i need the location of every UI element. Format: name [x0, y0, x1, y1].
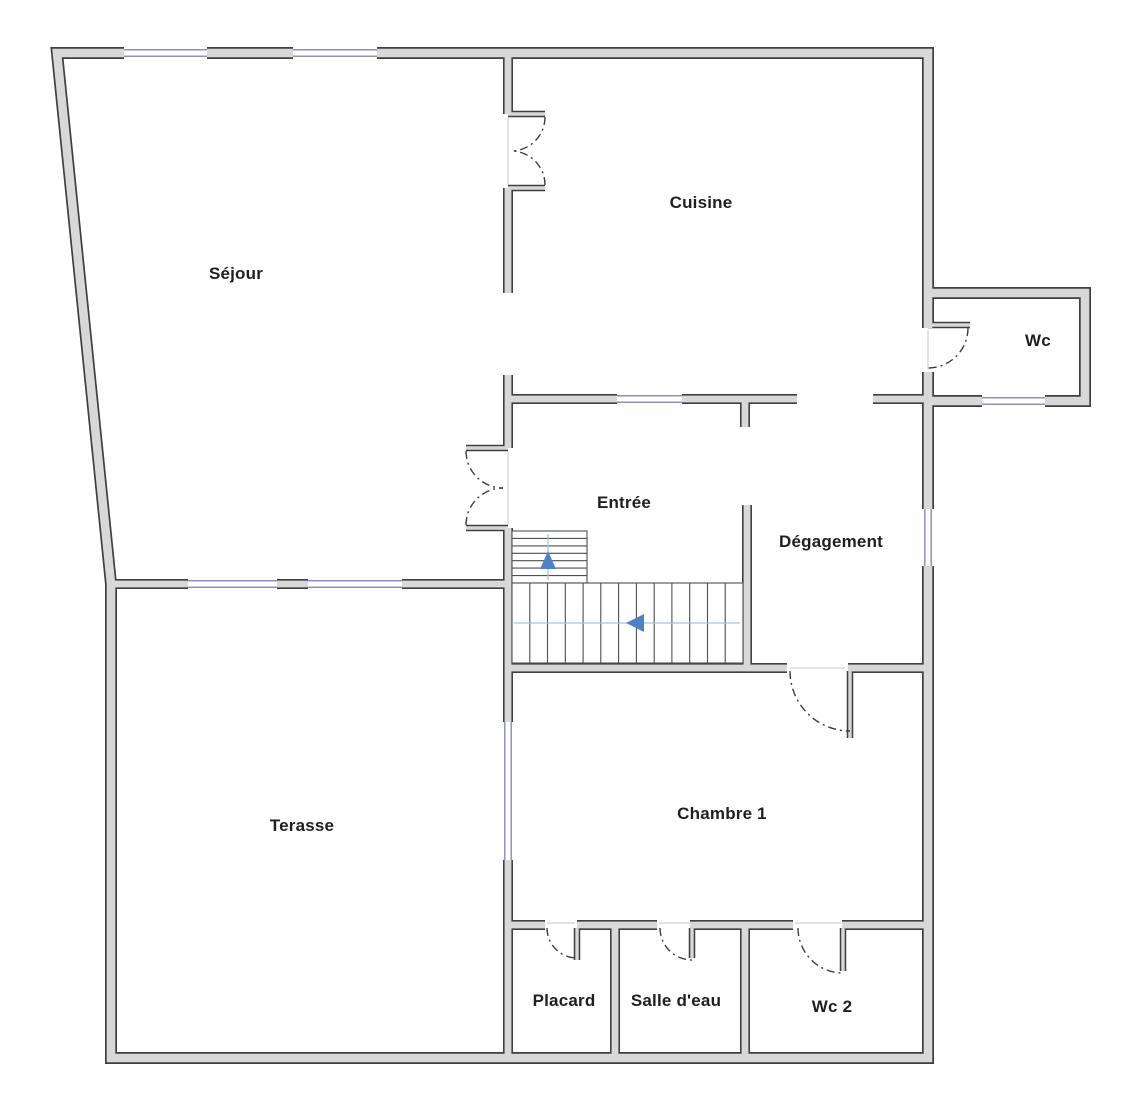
- floor-plan: Séjour Cuisine Wc Entrée Dégagement Tera…: [0, 0, 1128, 1106]
- window: [188, 579, 277, 589]
- window: [308, 579, 402, 589]
- floor-plan-svg: Séjour Cuisine Wc Entrée Dégagement Tera…: [0, 0, 1128, 1106]
- door-thresholds: [508, 117, 928, 923]
- door-arc-wc2: [798, 928, 843, 973]
- door-arc-chambre1: [790, 671, 850, 731]
- staircase: [512, 531, 743, 663]
- window: [124, 48, 207, 58]
- room-label-salle-deau: Salle d'eau: [631, 991, 721, 1010]
- room-label-chambre1: Chambre 1: [677, 804, 767, 823]
- room-label-sejour: Séjour: [209, 264, 263, 283]
- window: [923, 509, 933, 566]
- window: [293, 48, 377, 58]
- window: [503, 722, 513, 860]
- window: [617, 394, 682, 404]
- room-label-entree: Entrée: [597, 493, 651, 512]
- room-label-wc: Wc: [1025, 331, 1051, 350]
- window: [982, 396, 1045, 406]
- door-arc-salle-deau: [660, 928, 692, 960]
- room-label-wc2: Wc 2: [812, 997, 852, 1016]
- windows-layer: [124, 48, 1045, 860]
- room-label-degagement: Dégagement: [779, 532, 883, 551]
- door-arc-placard: [547, 928, 577, 958]
- door-arc-wc: [928, 328, 968, 368]
- door-arc-sejour-cuisine-bottom: [511, 151, 545, 185]
- room-label-cuisine: Cuisine: [670, 193, 733, 212]
- room-label-placard: Placard: [533, 991, 596, 1010]
- door-arc-sejour-entree-bottom: [466, 488, 503, 525]
- room-label-terasse: Terasse: [270, 816, 334, 835]
- door-arc-sejour-entree-top: [466, 451, 503, 488]
- door-arc-sejour-cuisine-top: [511, 117, 545, 151]
